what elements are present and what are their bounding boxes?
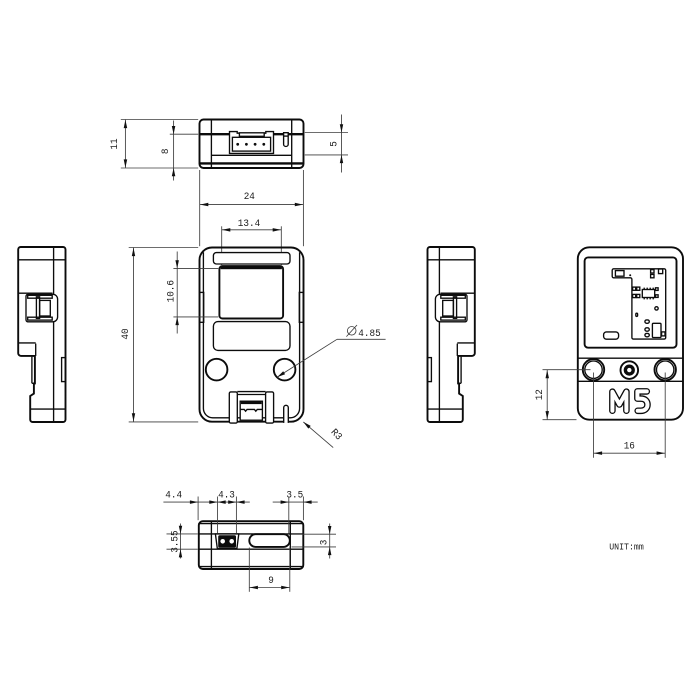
svg-text:8: 8 <box>160 149 172 155</box>
svg-text:4.85: 4.85 <box>358 328 380 340</box>
svg-text:3: 3 <box>319 540 331 546</box>
svg-text:12: 12 <box>534 389 546 400</box>
svg-text:5: 5 <box>328 141 340 147</box>
svg-text:4.4: 4.4 <box>165 489 182 501</box>
svg-text:40: 40 <box>120 328 132 339</box>
svg-text:10.6: 10.6 <box>166 280 178 302</box>
svg-text:9: 9 <box>268 575 274 587</box>
svg-text:16: 16 <box>624 440 635 452</box>
svg-text:24: 24 <box>244 191 255 203</box>
svg-text:UNIT:mm: UNIT:mm <box>609 543 644 553</box>
svg-text:11: 11 <box>109 138 121 149</box>
svg-text:13.4: 13.4 <box>238 218 260 230</box>
svg-text:3.55: 3.55 <box>169 530 181 552</box>
svg-text:4.3: 4.3 <box>218 489 235 501</box>
